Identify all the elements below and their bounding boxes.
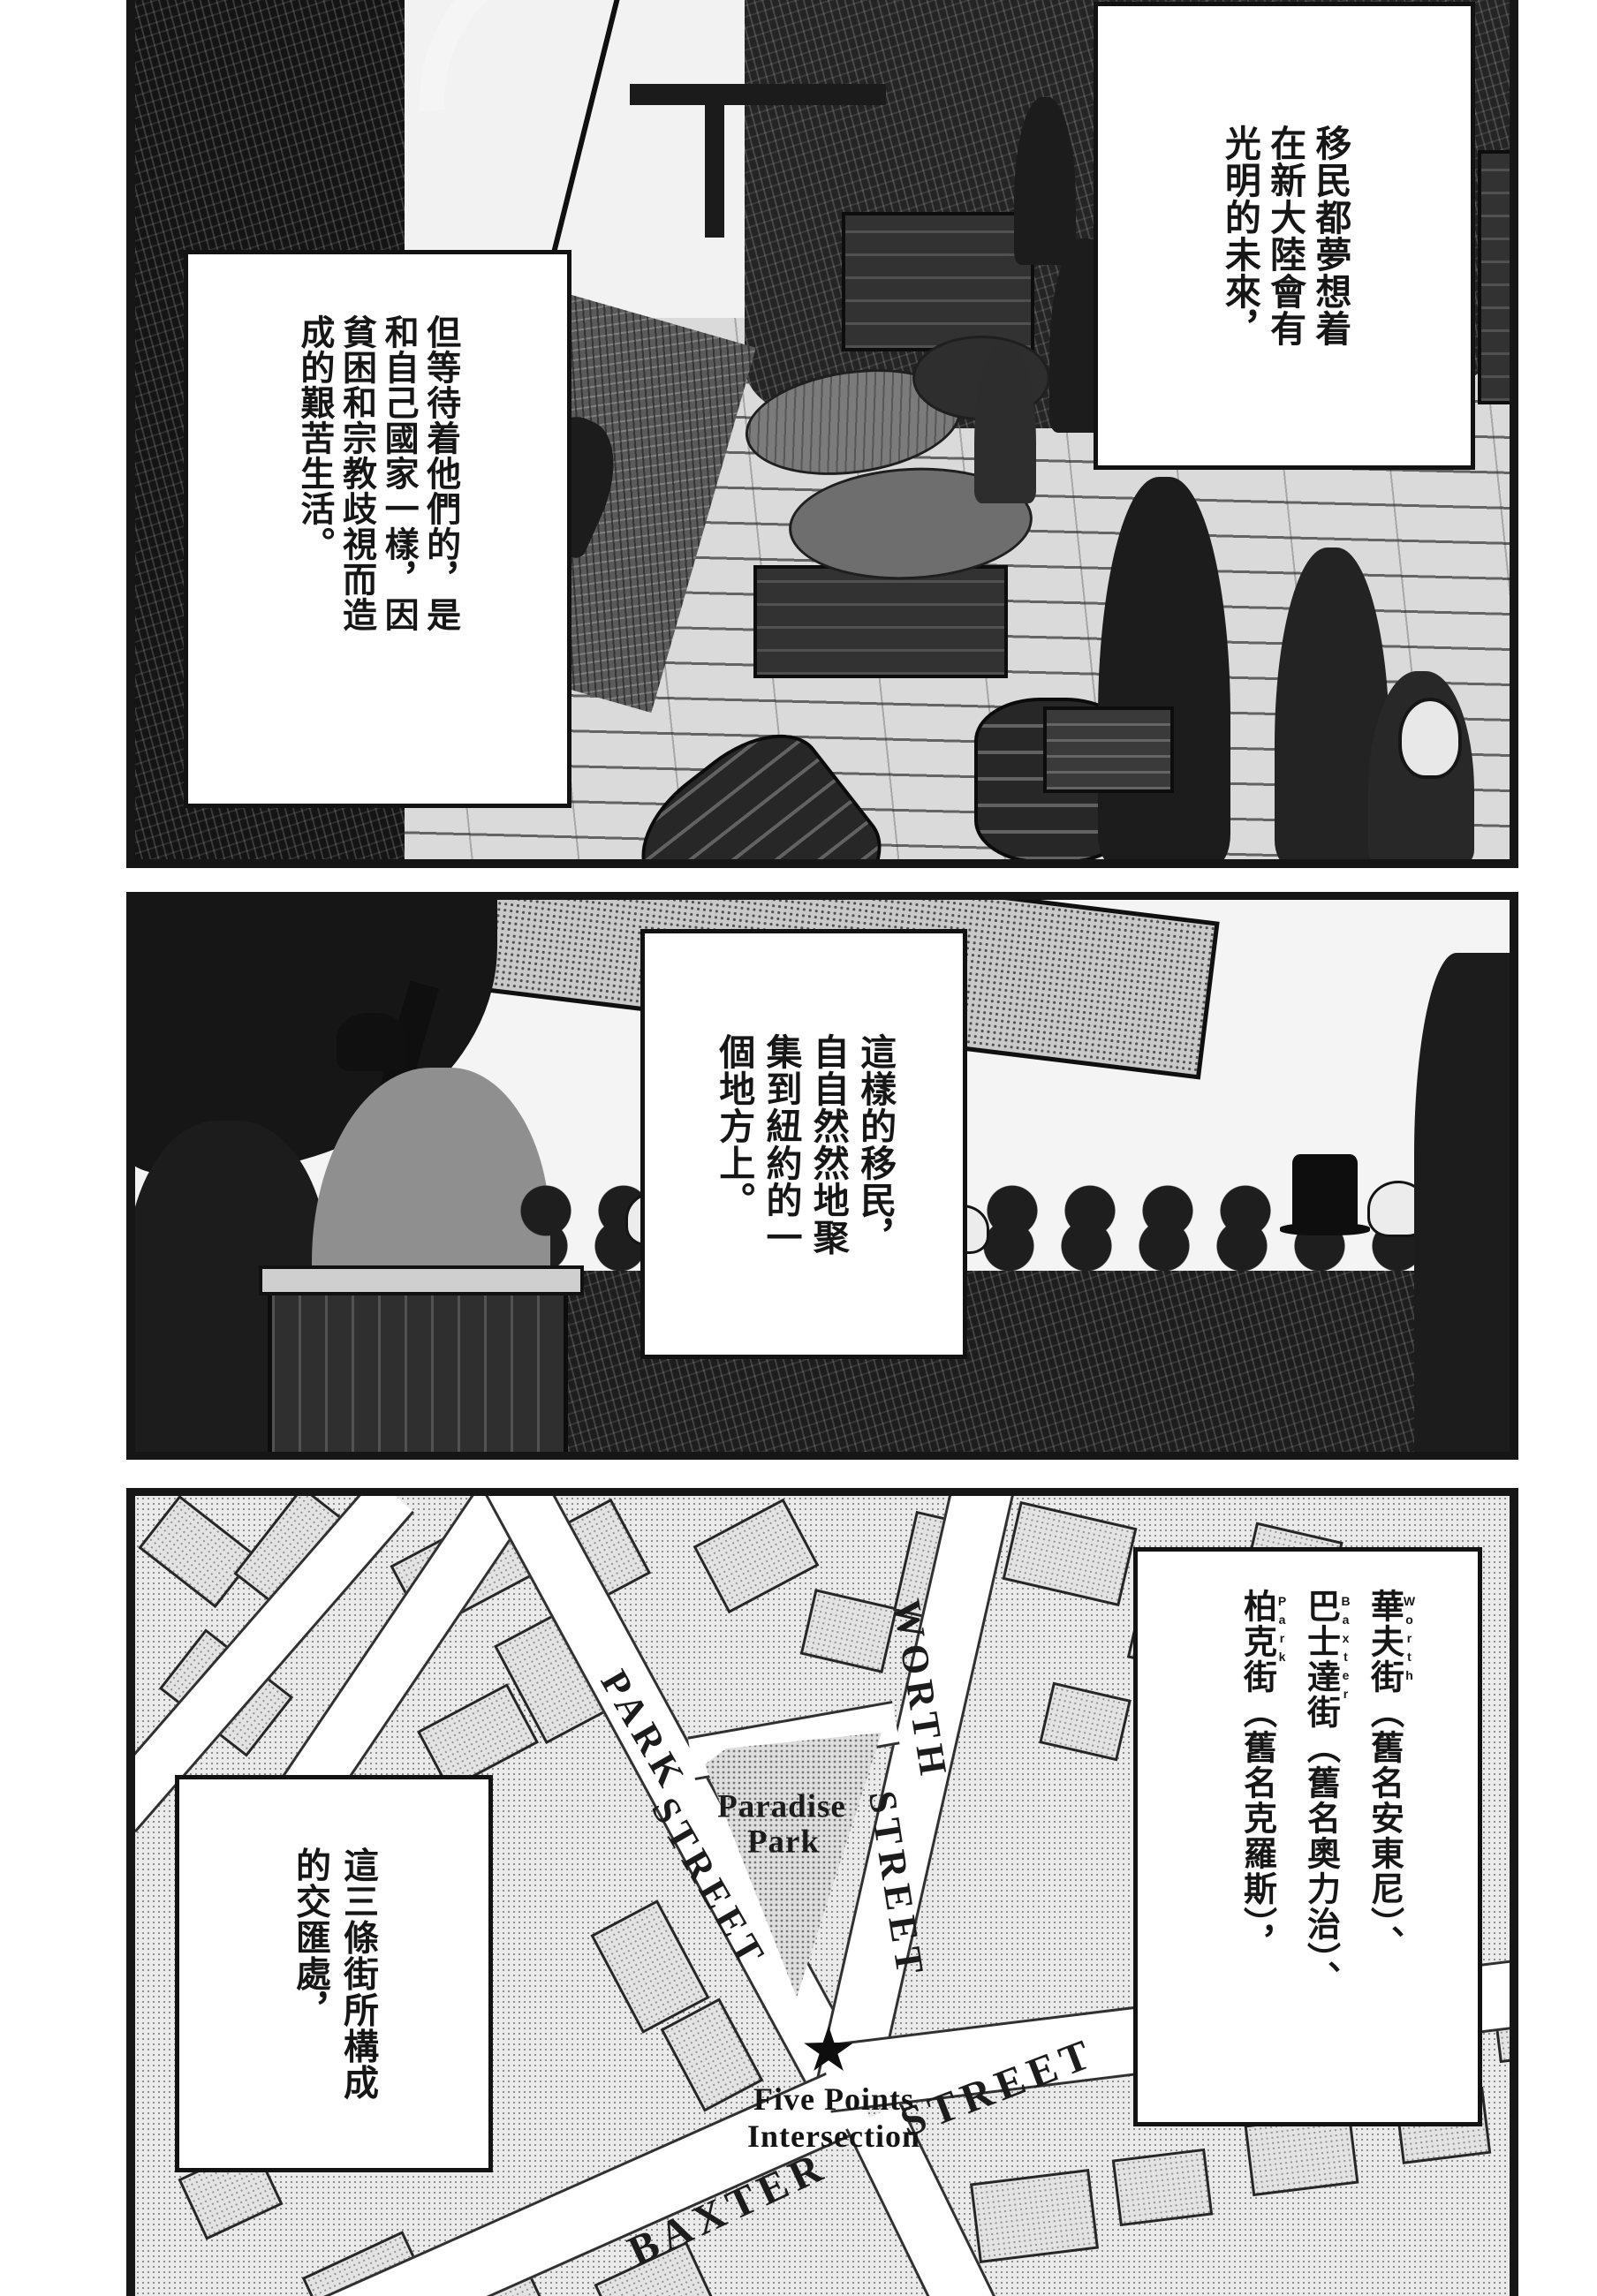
chest-lid-art [259,1265,584,1295]
street-name-text: 柏克街（舊名克羅斯）， [1238,1589,1275,1960]
building-block [1112,2149,1213,2226]
wooden-chest-art [268,1288,568,1460]
narration-column: 在新大陸會有 [1261,125,1306,347]
narration-column: 華夫街（舊名安東尼）、 Worth [1367,1589,1401,1996]
narration-column: 成的艱苦生活。 [293,314,336,632]
narration-box-hardship: 但等待着他們的，是 和自己國家一樣，因 貧困和宗教歧視而造 成的艱苦生活。 [184,250,571,808]
narration-column: 這三條街所構成 [334,1847,382,2101]
narration-box-gather: 這樣的移民， 自自然然地聚 集到紐約的一 個地方上。 [640,929,967,1359]
narration-column: 巴士達街（舊名奧力治）、 Baxter [1304,1589,1337,1996]
narration-column: 這樣的移民， [851,1033,897,1256]
trunk-art [1043,706,1174,793]
street-name-ruby: Baxter [1340,1594,1352,1705]
narration-column: 集到紐約的一 [757,1033,804,1256]
top-hat-art [1292,1154,1358,1230]
street-name-text: 華夫街（舊名安東尼）、 [1366,1589,1403,1960]
building-block [800,1589,898,1673]
narration-box-street-names: 華夫街（舊名安東尼）、 Worth 巴士達街（舊名奧力治）、 Baxter 柏克… [1133,1547,1482,2126]
table-art [630,84,886,105]
narration-column: 和自己國家一樣，因 [378,314,420,632]
crate-stack-art [1478,150,1518,404]
building-block [970,2169,1099,2263]
crate-art [842,212,1034,351]
street-name-ruby: Park [1276,1594,1289,1668]
narration-column: 自自然然地聚 [804,1033,851,1256]
street-name-text: 巴士達街（舊名奧力治）、 [1302,1589,1339,1996]
cap-head-art [337,1013,407,1071]
narration-column: 的交匯處， [286,1847,334,2101]
panel-five-points-map: PARK STREET WORTH STREET BAXTER STREET P… [126,1488,1518,2296]
five-points-label-line1: Five Points [753,2081,914,2118]
street-name-ruby: Worth [1404,1594,1416,1687]
narration-box-intersection: 這三條街所構成 的交匯處， [175,1775,493,2172]
narration-column: 光明的未來， [1216,125,1261,347]
narration-column: 移民都夢想着 [1307,125,1352,347]
top-hat-brim-art [1280,1223,1370,1235]
panel-pier-scene: 移民都夢想着 在新大陸會有 光明的未來， 但等待着他們的，是 和自己國家一樣，因… [126,0,1518,868]
paradise-park-label-line2: Park [747,1824,820,1862]
five-points-label-line2: Intersection [747,2118,920,2155]
building-block [138,1495,256,1608]
manga-page: 移民都夢想着 在新大陸會有 光明的未來， 但等待着他們的，是 和自己國家一樣，因… [0,0,1597,2296]
building-block [1039,1682,1132,1762]
figure-silhouette [1414,953,1518,1456]
narration-column: 貧困和宗教歧視而造 [336,314,378,632]
paradise-park-label-line1: Paradise [717,1788,846,1826]
crate-art [753,565,1008,678]
woman-head-art [1398,698,1462,779]
narration-column: 個地方上。 [709,1033,756,1256]
narration-box-dream: 移民都夢想着 在新大陸會有 光明的未來， [1094,2,1475,470]
building-block [1003,1501,1138,1606]
building-block [693,1499,820,1613]
panel-crowd-scene: 這樣的移民， 自自然然地聚 集到紐約的一 個地方上。 [126,892,1518,1460]
narration-column: 但等待着他們的，是 [420,314,462,632]
table-leg-art [705,105,724,238]
narration-column: 柏克街（舊名克羅斯）， Park [1240,1589,1274,1996]
